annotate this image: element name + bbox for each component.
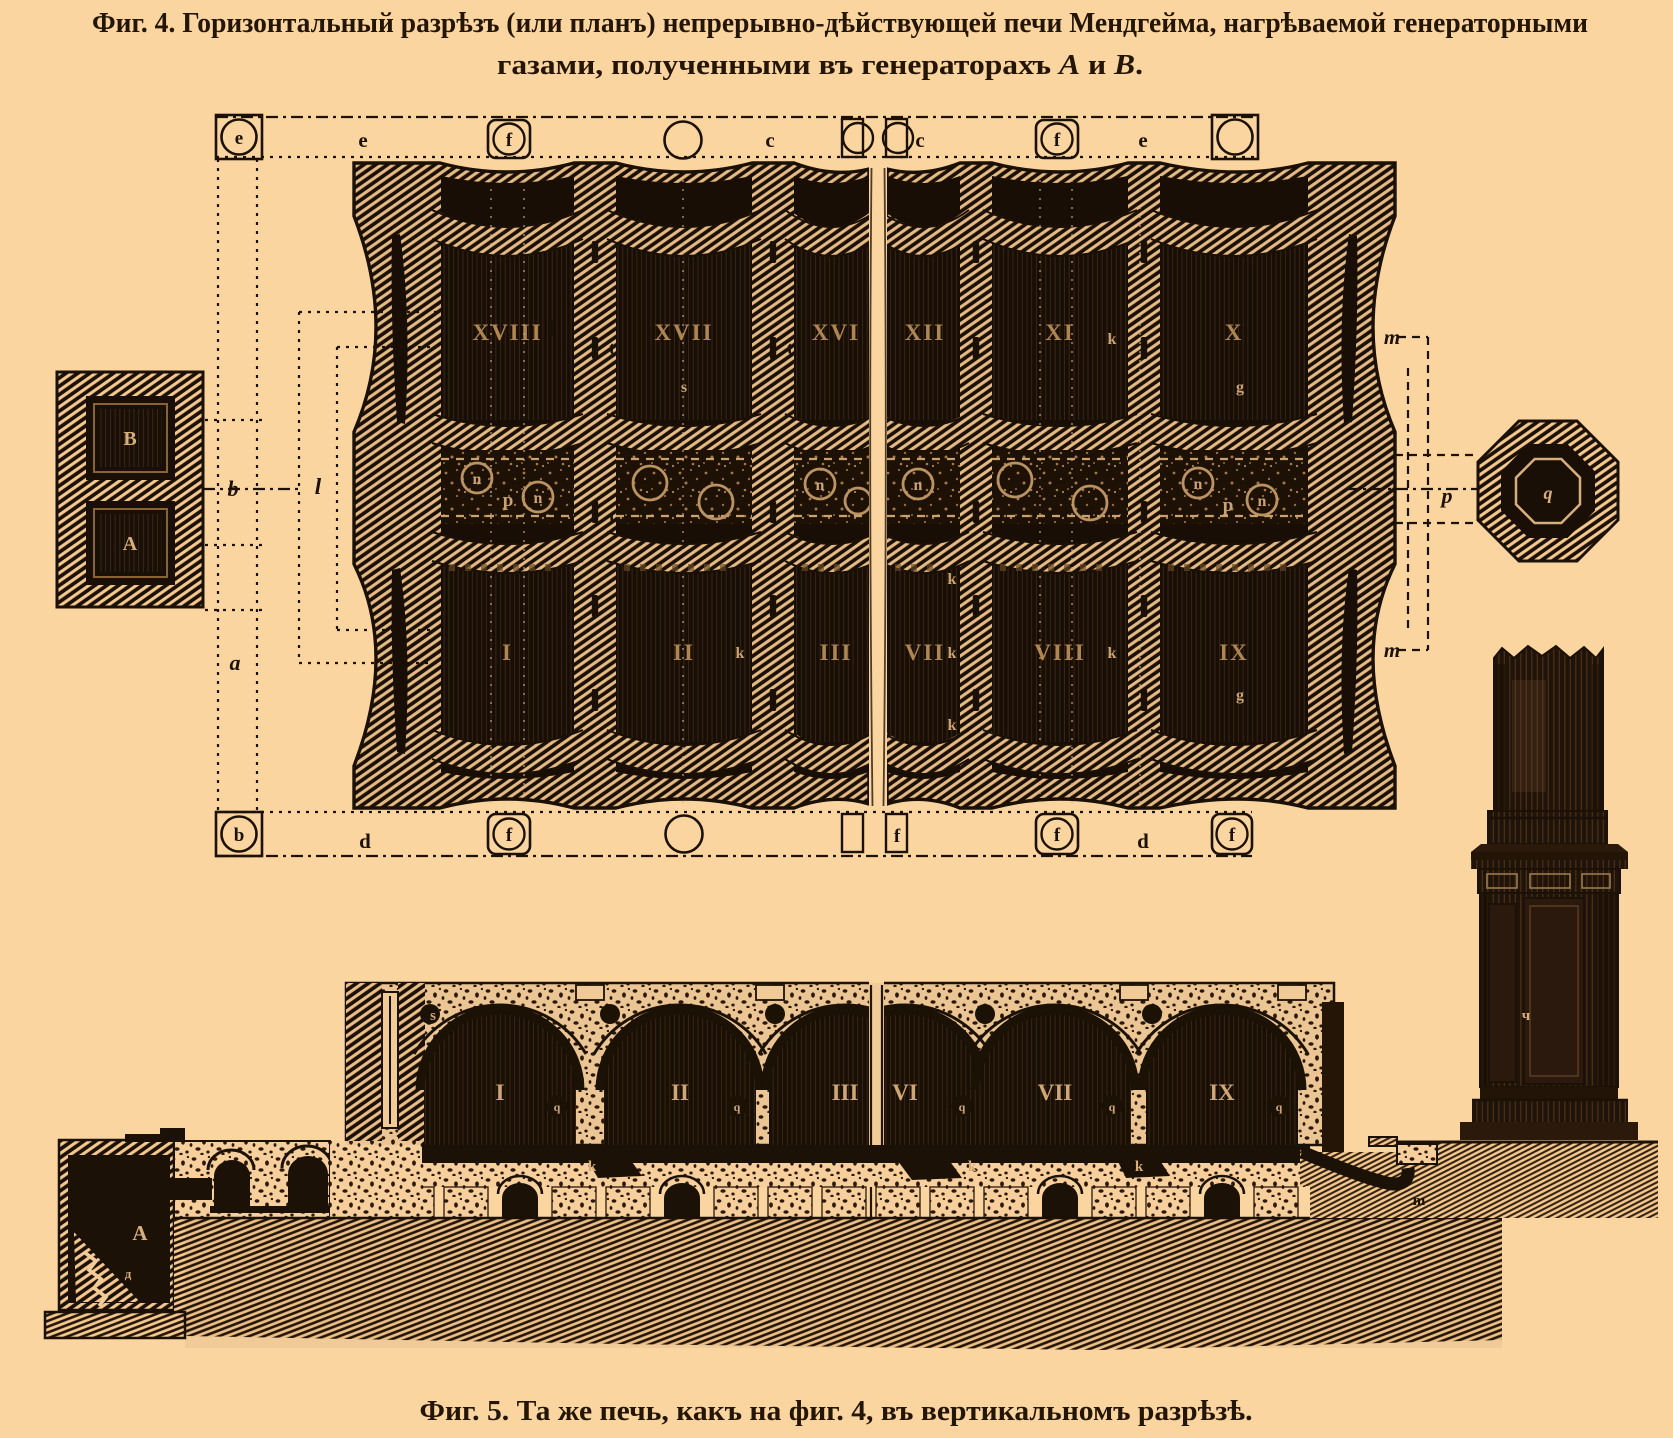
svg-text:Фиг. 5. Та же печь, какъ на фи: Фиг. 5. Та же печь, какъ на фиг. 4, въ в… bbox=[420, 1395, 1253, 1427]
svg-text:d: d bbox=[359, 829, 371, 853]
svg-text:f: f bbox=[894, 826, 901, 847]
svg-text:Фиг. 4. Горизонтальный разрѣзъ: Фиг. 4. Горизонтальный разрѣзъ (или план… bbox=[92, 7, 1588, 39]
svg-text:e: e bbox=[235, 128, 243, 149]
svg-text:q: q bbox=[1544, 483, 1553, 503]
svg-text:B: B bbox=[123, 428, 136, 450]
svg-text:A: A bbox=[123, 533, 138, 555]
svg-text:f: f bbox=[1229, 825, 1236, 846]
svg-text:f: f bbox=[1054, 825, 1061, 846]
svg-text:m: m bbox=[1413, 1193, 1426, 1209]
svg-text:A: A bbox=[132, 1221, 148, 1245]
svg-text:f: f bbox=[1054, 130, 1061, 151]
svg-text:c: c bbox=[765, 128, 774, 152]
svg-text:a: a bbox=[230, 650, 241, 675]
svg-text:e: e bbox=[358, 128, 367, 152]
svg-text:e: e bbox=[1138, 128, 1147, 152]
svg-text:l: l bbox=[315, 474, 322, 499]
svg-text:f: f bbox=[506, 825, 513, 846]
svg-text:k: k bbox=[588, 1159, 597, 1175]
svg-text:d: d bbox=[1137, 829, 1149, 853]
svg-text:k: k bbox=[968, 1159, 977, 1175]
svg-text:p: p bbox=[1440, 483, 1453, 508]
svg-text:m: m bbox=[1384, 325, 1400, 349]
svg-text:b: b bbox=[234, 825, 245, 846]
svg-text:газами, полученными въ генерат: газами, полученными въ генераторахъ А и … bbox=[497, 49, 1143, 81]
svg-text:m: m bbox=[1384, 638, 1400, 662]
svg-text:c: c bbox=[915, 128, 924, 152]
svg-text:f: f bbox=[506, 130, 513, 151]
svg-text:ч: ч bbox=[1522, 1008, 1531, 1024]
svg-text:k: k bbox=[1135, 1159, 1144, 1175]
svg-text:д: д bbox=[125, 1266, 132, 1281]
